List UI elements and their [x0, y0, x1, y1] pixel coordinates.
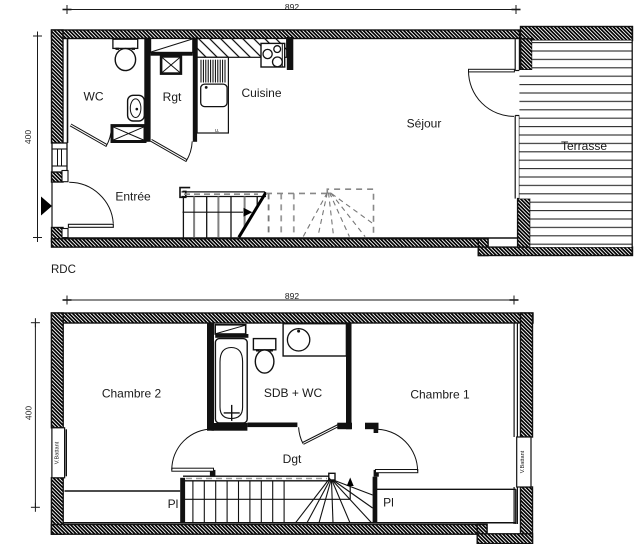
svg-text:400: 400: [24, 406, 34, 420]
svg-text:SDB + WC: SDB + WC: [264, 386, 323, 400]
svg-text:Terrasse: Terrasse: [561, 139, 607, 153]
svg-text:u.: u.: [215, 128, 219, 134]
svg-text:WC: WC: [84, 90, 104, 104]
svg-text:Séjour: Séjour: [407, 117, 442, 131]
svg-text:400: 400: [23, 130, 33, 144]
svg-text:RDC: RDC: [51, 264, 76, 276]
svg-text:Pl: Pl: [168, 497, 179, 511]
svg-text:Chambre 2: Chambre 2: [102, 387, 162, 401]
svg-text:V.Battant: V.Battant: [55, 441, 61, 464]
svg-text:Entrée: Entrée: [115, 190, 151, 204]
svg-text:892: 892: [285, 291, 299, 301]
svg-text:Chambre 1: Chambre 1: [410, 388, 470, 402]
svg-text:Pl: Pl: [383, 496, 394, 510]
svg-text:Cuisine: Cuisine: [241, 86, 281, 100]
svg-text:Dgt: Dgt: [283, 452, 302, 466]
svg-text:892: 892: [285, 2, 299, 12]
svg-text:V.Battant: V.Battant: [520, 450, 526, 473]
svg-text:Rgt: Rgt: [163, 90, 182, 104]
